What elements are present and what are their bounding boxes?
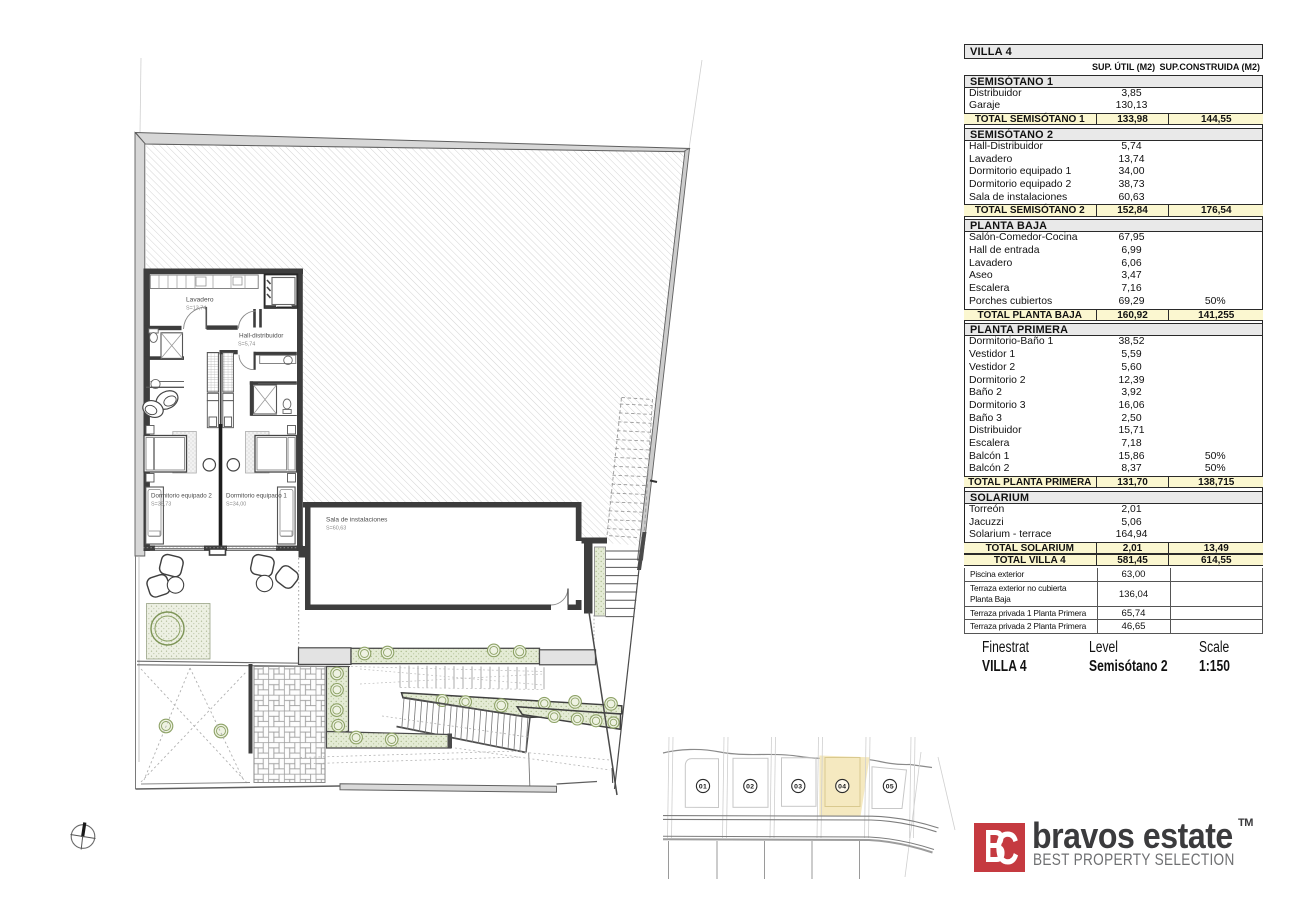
svg-text:S=13,74: S=13,74 [186, 306, 206, 312]
svg-text:Dormitorio equipado 1: Dormitorio equipado 1 [226, 493, 287, 500]
svg-text:02: 02 [746, 784, 754, 791]
svg-text:Sala de instalaciones: Sala de instalaciones [326, 517, 388, 524]
svg-text:04: 04 [838, 784, 846, 791]
svg-text:S=34,00: S=34,00 [226, 502, 246, 508]
svg-text:S=38,73: S=38,73 [151, 502, 171, 508]
svg-text:05: 05 [886, 784, 894, 791]
svg-text:03: 03 [794, 784, 802, 791]
svg-text:01: 01 [699, 784, 707, 791]
svg-text:S=5,74: S=5,74 [238, 342, 255, 348]
svg-text:Dormitorio equipado 2: Dormitorio equipado 2 [151, 493, 212, 500]
svg-text:Hall-distribuidor: Hall-distribuidor [239, 333, 284, 340]
svg-text:S=60,63: S=60,63 [326, 526, 346, 532]
svg-text:Lavadero: Lavadero [186, 297, 214, 304]
